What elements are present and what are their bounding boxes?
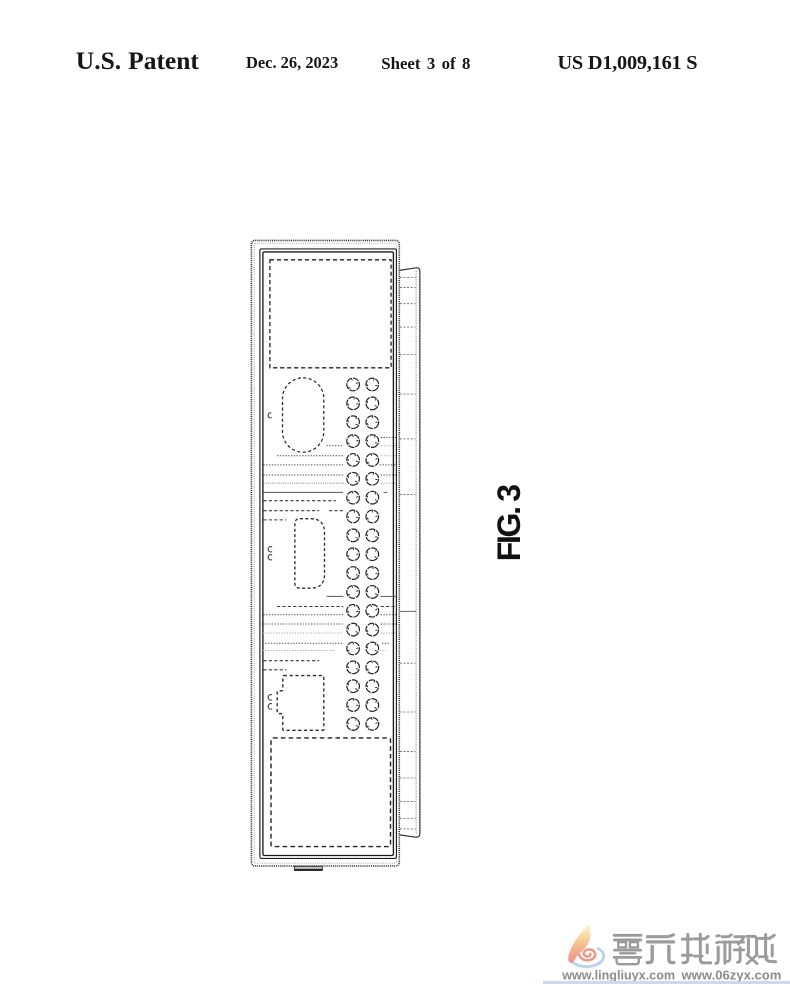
svg-text:FIG. 3: FIG. 3: [491, 485, 527, 562]
svg-text:www.lingliuyx.com: www.lingliuyx.com: [561, 969, 675, 983]
svg-text:www.06zyx.com: www.06zyx.com: [681, 968, 782, 983]
